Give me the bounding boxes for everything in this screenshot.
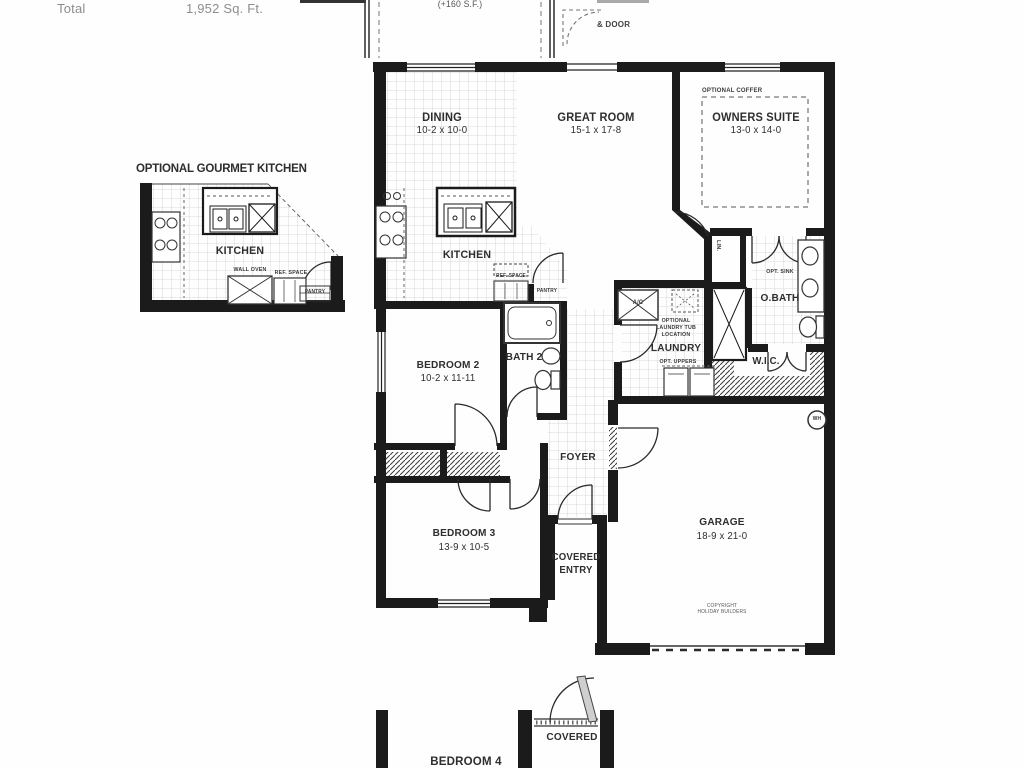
covered-entry-lower-label: COVERED	[546, 732, 597, 743]
floor-plan-drawing	[0, 0, 1024, 768]
ac-label: A/C	[633, 300, 644, 306]
kitchen-label: KITCHEN	[443, 250, 491, 262]
shower	[712, 288, 746, 360]
lanai-door-note: & DOOR	[597, 21, 630, 29]
inset-kitchen-title: OPTIONAL GOURMET KITCHEN	[136, 163, 307, 175]
summary-total-label: Total	[57, 2, 85, 16]
inset-pantry-label: PANTRY	[305, 290, 325, 295]
bedroom4-label: BEDROOM 4	[430, 755, 502, 768]
bath2-label: BATH 2	[506, 352, 543, 363]
lanai-area-note: (+160 S.F.)	[438, 0, 483, 9]
garage-label: GARAGE	[699, 517, 744, 528]
optional-lanai-door	[563, 10, 601, 46]
bedroom3-dims: 13-9 x 10-5	[439, 543, 490, 554]
opt-sink-label: OPT. SINK	[766, 270, 794, 276]
linen-label: LIN.	[714, 240, 720, 251]
inset-ref	[274, 278, 306, 304]
owners-bath-fixtures	[798, 240, 824, 338]
inset-island	[203, 188, 277, 234]
entry-threshold	[558, 519, 592, 524]
foyer-tile	[548, 420, 607, 517]
dining-kitchen-tile	[386, 72, 567, 301]
opt-tub-line3: LOCATION	[662, 333, 691, 339]
covered-entry-line1: COVERED	[552, 553, 601, 564]
owners-suite-label: OWNERS SUITE	[712, 112, 800, 124]
optional-lanai	[365, 0, 601, 58]
inset-wall-oven-label: WALL OVEN	[233, 268, 266, 274]
hall-tile	[567, 309, 614, 420]
foyer-label: FOYER	[560, 452, 596, 463]
dining-label: DINING	[422, 112, 462, 124]
opt-uppers-label: OPT. UPPERS	[659, 360, 696, 366]
garage-door	[650, 646, 805, 650]
summary-total-value: 1,952 Sq. Ft.	[186, 2, 263, 16]
garage-dims: 18-9 x 21-0	[697, 532, 748, 543]
dining-dims: 10-2 x 10-0	[417, 126, 468, 137]
opt-tub-line2: LAUNDRY TUB	[656, 326, 696, 332]
laundry-label: LAUNDRY	[651, 343, 701, 354]
bedroom2-label: BEDROOM 2	[417, 360, 480, 371]
ref-space-label: REF. SPACE	[496, 274, 526, 279]
optional-coffer-label: OPTIONAL COFFER	[702, 88, 762, 94]
wic-label: W.I.C.	[752, 357, 779, 368]
owners-bath-label: O.BATH	[760, 293, 799, 304]
opt-tub-line1: OPTIONAL	[662, 319, 691, 325]
water-heater-label: WH	[813, 417, 821, 422]
owners-suite-dims: 13-0 x 14-0	[731, 126, 782, 137]
covered-entry-line2: ENTRY	[559, 566, 592, 577]
great-room-label: GREAT ROOM	[557, 112, 634, 124]
bath2-fixtures	[504, 303, 560, 390]
bedroom3-label: BEDROOM 3	[433, 528, 496, 539]
bedroom2-dims: 10-2 x 11-11	[421, 374, 476, 385]
floor-plan-page: Total 1,952 Sq. Ft. (+160 S.F.) & DOOR O…	[0, 0, 1024, 768]
inset-kitchen-label: KITCHEN	[216, 246, 264, 258]
kitchen-island	[437, 188, 515, 236]
inset-wall-oven	[228, 276, 272, 304]
great-room-dims: 15-1 x 17-8	[571, 126, 622, 137]
pantry-label: PANTRY	[537, 289, 557, 294]
inset-ref-space-label: REF. SPACE	[275, 271, 308, 277]
copyright-line2: HOLIDAY BUILDERS	[697, 610, 746, 615]
